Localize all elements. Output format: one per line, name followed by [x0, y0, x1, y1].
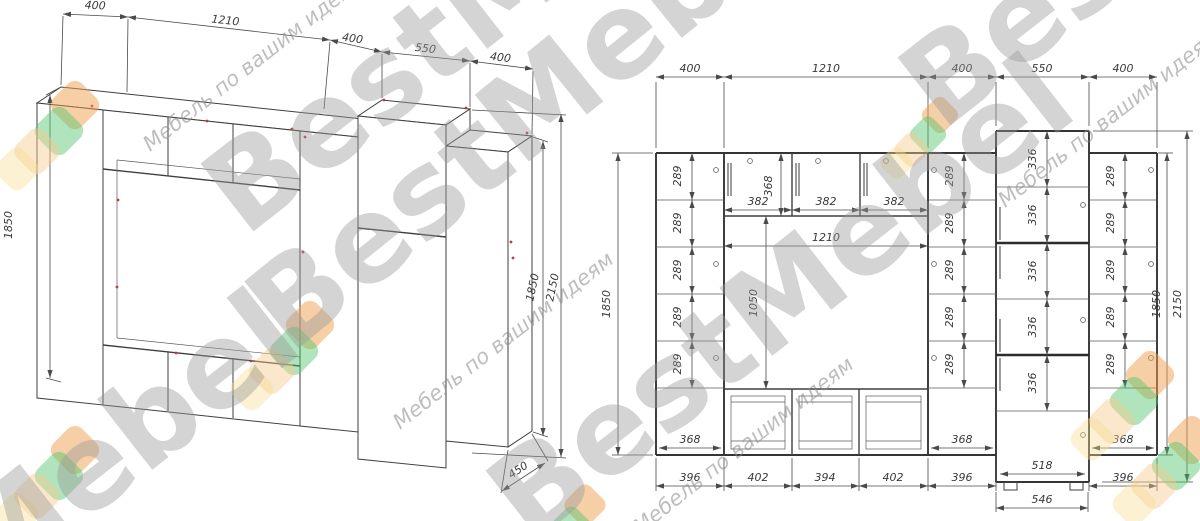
dim-label: 289 — [671, 166, 684, 187]
dim-label: 289 — [943, 354, 956, 375]
dim-label: 289 — [1104, 166, 1117, 187]
dim-label: 1850 — [1150, 290, 1163, 318]
dim-label: 400 — [84, 0, 106, 13]
dim-label: 336 — [1026, 317, 1039, 338]
dim-label: 518 — [1032, 459, 1053, 472]
dim-label: 2150 — [1171, 290, 1184, 318]
dim-label: 1210 — [812, 62, 840, 75]
dim-label: 546 — [1032, 493, 1053, 506]
dim-label: 289 — [943, 260, 956, 281]
dim-label: 336 — [1026, 261, 1039, 282]
dim-label: 289 — [671, 213, 684, 234]
dim-label: 396 — [952, 471, 973, 484]
dim-label: 336 — [1026, 373, 1039, 394]
dim-label: 396 — [1113, 471, 1134, 484]
dim-label: 289 — [943, 307, 956, 328]
dim-label: 368 — [762, 176, 775, 197]
dim-label: 368 — [952, 433, 973, 446]
furniture-drawing-svg: 400 1210 400 550 400 1850 1850 2150 450 — [0, 0, 1200, 521]
dim-label: 394 — [815, 471, 836, 484]
dim-label: 1850 — [2, 211, 15, 239]
dim-label: 1210 — [211, 13, 240, 29]
dim-label: 289 — [1104, 307, 1117, 328]
dim-label: 289 — [1104, 354, 1117, 375]
dim-label: 402 — [748, 471, 769, 484]
dim-label: 336 — [1026, 205, 1039, 226]
blueprint-canvas: 400 1210 400 550 400 1850 1850 2150 450 — [0, 0, 1200, 521]
dim-label: 400 — [1113, 62, 1134, 75]
dim-label: 289 — [671, 260, 684, 281]
dim-label: 289 — [1104, 213, 1117, 234]
dim-label: 1850 — [600, 290, 613, 318]
dim-label: 402 — [883, 471, 904, 484]
dim-label: 289 — [1104, 260, 1117, 281]
